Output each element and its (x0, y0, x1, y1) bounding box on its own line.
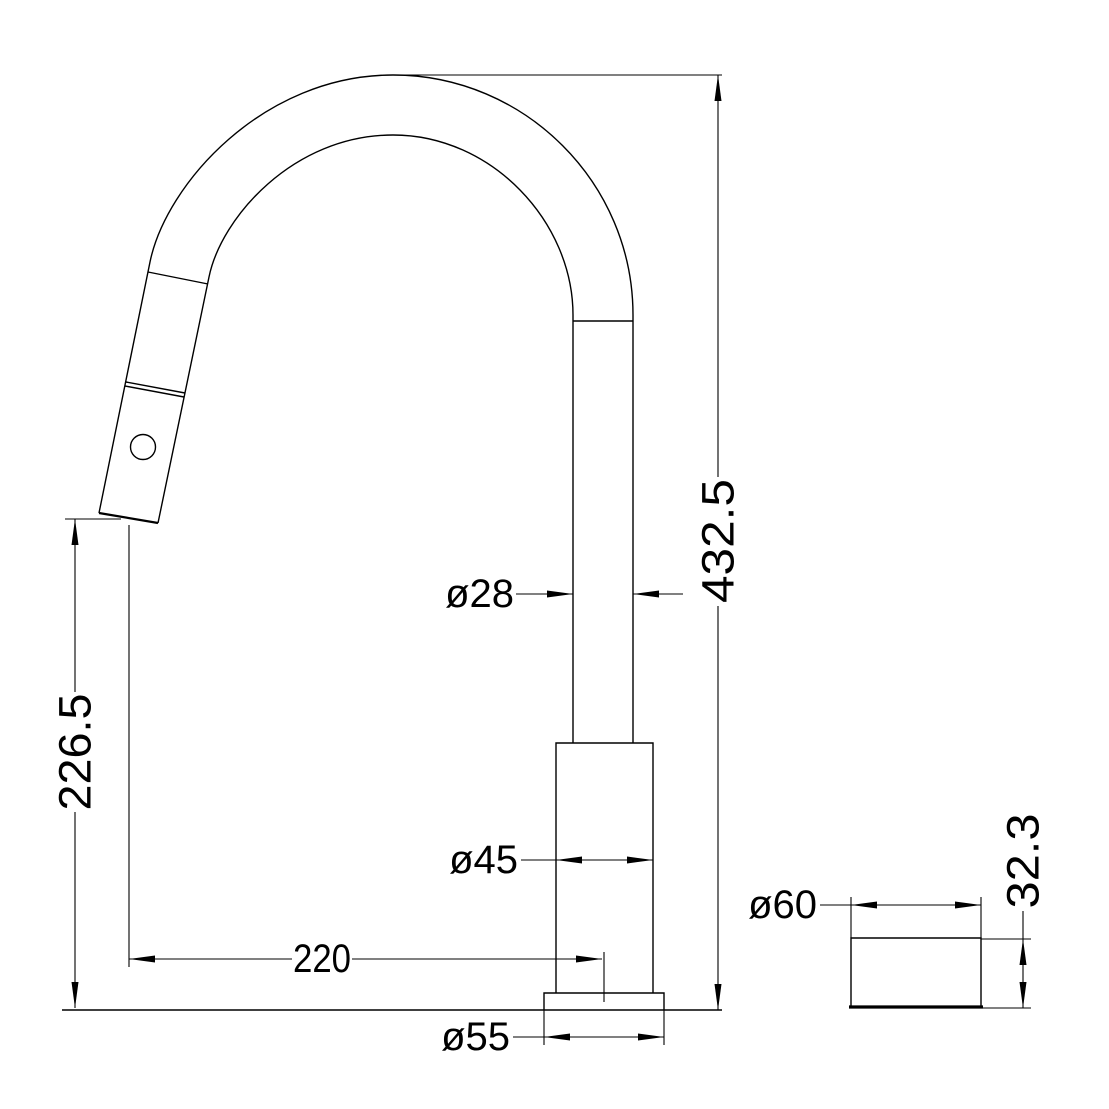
dim-tube-diameter: ø28 (445, 572, 683, 616)
dim-flange-height: 32.3 (981, 814, 1049, 1009)
arrow-left-icon (633, 591, 659, 598)
spout-inner-edge (158, 135, 573, 743)
arrow-left-icon (544, 1034, 570, 1041)
spout-outer-edge (99, 75, 633, 743)
arrow-right-icon (638, 1034, 664, 1041)
faucet-front-view (62, 75, 722, 1010)
dim-flange-diameter-label: ø60 (748, 883, 817, 927)
sprayhead-joint-line-upper (148, 272, 208, 284)
sprayhead-outlet-face (99, 513, 158, 523)
dim-outlet-height-label: 226.5 (50, 694, 101, 811)
dim-body-diameter-label: ø45 (449, 838, 518, 882)
dim-tube-diameter-label: ø28 (445, 572, 514, 616)
faucet-dimension-drawing: 226.5 432.5 ø28 ø45 (0, 0, 1109, 1109)
dim-flange-height-label: 32.3 (998, 814, 1049, 909)
dim-total-height-label: 432.5 (693, 479, 744, 603)
dim-outlet-height: 226.5 (50, 519, 122, 1008)
technical-drawing-sheet: 226.5 432.5 ø28 ø45 (0, 0, 1109, 1109)
dim-base-diameter-label: ø55 (441, 1015, 510, 1059)
arrow-right-icon (955, 902, 981, 909)
arrow-right-icon (576, 956, 602, 963)
flange-outline (851, 938, 981, 1007)
dim-body-diameter: ø45 (449, 838, 653, 882)
arrow-right-icon (547, 591, 573, 598)
arrow-down-icon (1020, 982, 1027, 1008)
flange-side-view (849, 897, 983, 1007)
sprayhead-button (131, 435, 156, 460)
arrow-right-icon (627, 857, 653, 864)
arrow-left-icon (556, 857, 582, 864)
arrow-down-icon (72, 982, 79, 1008)
arrow-up-icon (1020, 939, 1027, 965)
dim-flange-diameter: ø60 (748, 883, 981, 927)
arrow-down-icon (715, 984, 722, 1010)
arrow-up-icon (715, 75, 722, 101)
arrow-up-icon (72, 519, 79, 545)
arrow-left-icon (851, 902, 877, 909)
arrow-left-icon (129, 956, 155, 963)
dim-reach-label: 220 (293, 937, 351, 981)
dim-base-diameter: ø55 (441, 1010, 664, 1059)
dim-reach: 220 (129, 525, 604, 1002)
